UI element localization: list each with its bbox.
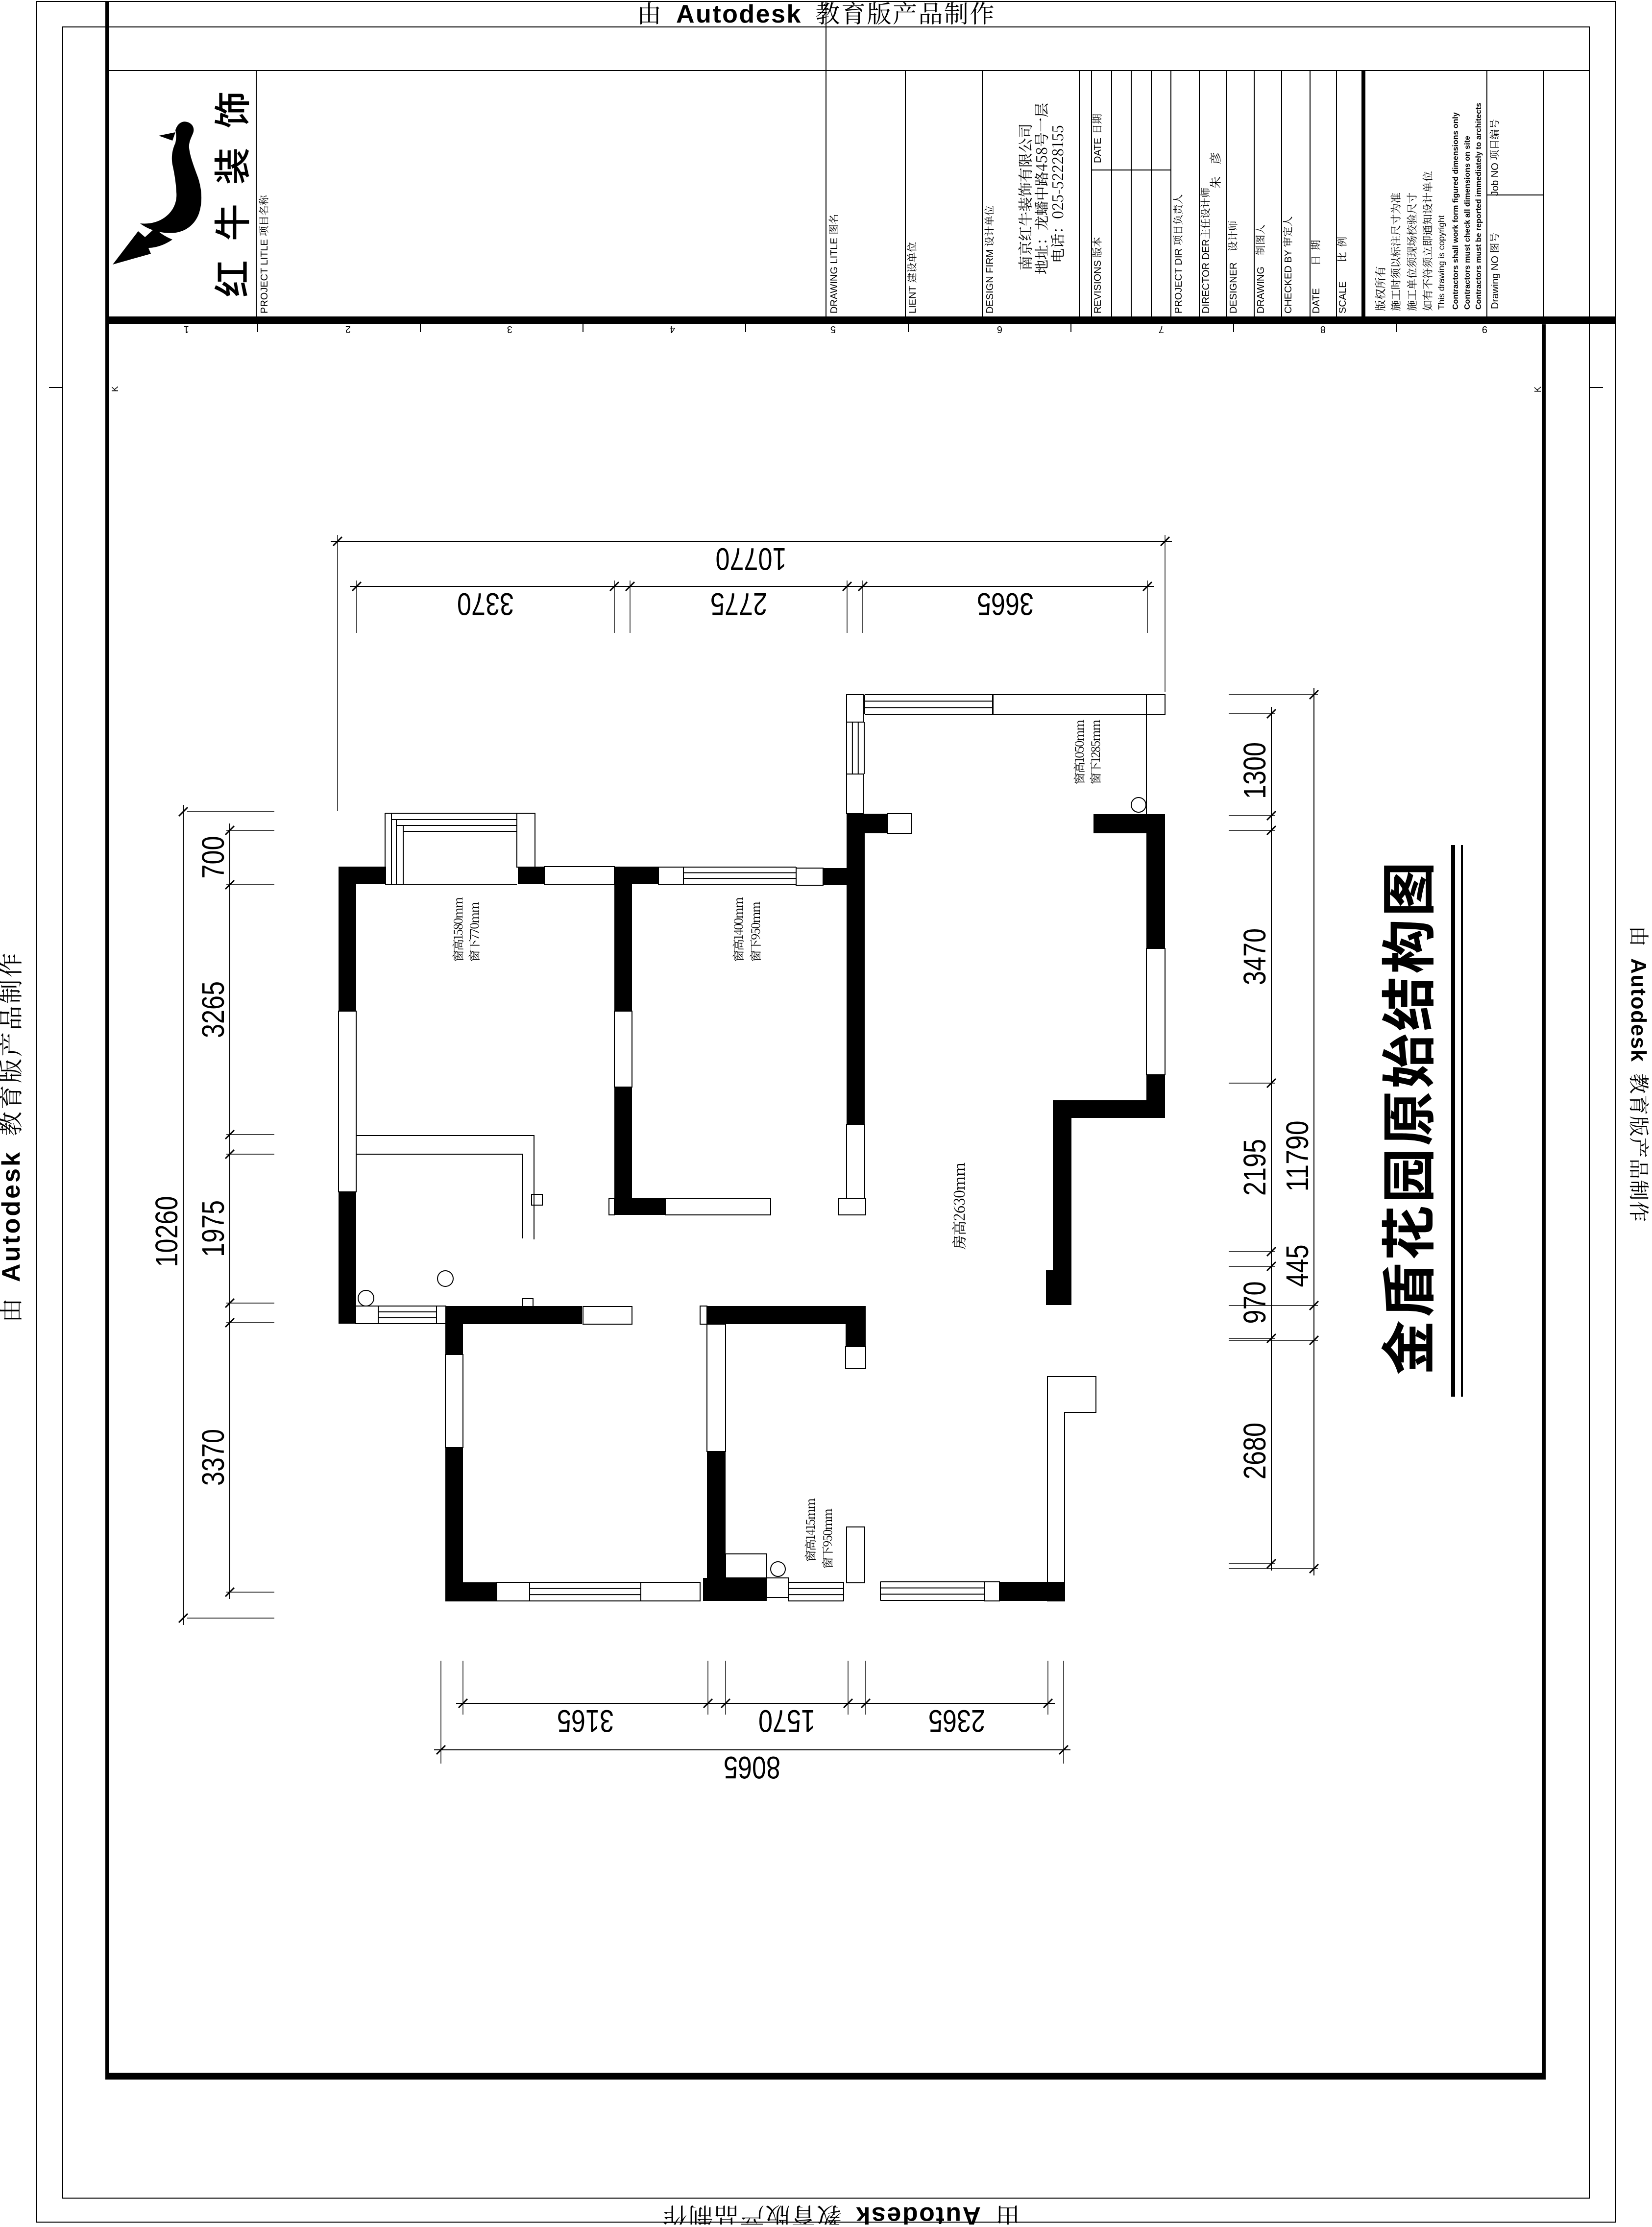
- svg-text:SCALE: SCALE: [1337, 263, 1348, 314]
- svg-text:2365: 2365: [928, 1703, 985, 1739]
- svg-text:5: 5: [830, 324, 836, 335]
- svg-text:Drawing NO: Drawing NO: [1490, 253, 1501, 309]
- svg-text:Contractors shall work form fi: Contractors shall work form figured dime…: [1452, 112, 1460, 310]
- svg-text:700: 700: [195, 836, 231, 879]
- svg-text:7: 7: [1159, 324, 1164, 335]
- svg-text:K: K: [1533, 387, 1543, 392]
- svg-text:2: 2: [345, 324, 351, 335]
- svg-text:2775: 2775: [710, 586, 767, 622]
- svg-text:8065: 8065: [724, 1750, 780, 1785]
- svg-text:Autodesk: Autodesk: [0, 1150, 25, 1282]
- svg-text:10260: 10260: [149, 1196, 184, 1267]
- svg-text:1975: 1975: [195, 1200, 231, 1257]
- svg-text:CHECKED BY: CHECKED BY: [1283, 247, 1294, 314]
- svg-text:3370: 3370: [195, 1429, 231, 1486]
- svg-text:LIENT: LIENT: [907, 283, 918, 314]
- svg-text:3265: 3265: [195, 981, 231, 1038]
- svg-text:DRAWING: DRAWING: [1256, 256, 1266, 314]
- svg-text:1300: 1300: [1237, 742, 1272, 799]
- svg-text:445: 445: [1280, 1245, 1315, 1287]
- svg-text:2195: 2195: [1237, 1139, 1272, 1196]
- svg-text:1: 1: [184, 324, 189, 335]
- svg-text:3470: 3470: [1237, 928, 1272, 985]
- svg-text:DATE: DATE: [1093, 135, 1103, 163]
- svg-text:3370: 3370: [457, 586, 514, 622]
- svg-text:Contractors must check all dim: Contractors must check all dimensions on…: [1463, 136, 1472, 310]
- svg-text:Autodesk: Autodesk: [855, 2202, 981, 2225]
- svg-text:DESIGN FIRM: DESIGN FIRM: [985, 246, 996, 314]
- svg-text:970: 970: [1237, 1282, 1272, 1324]
- svg-text:Job NO: Job NO: [1490, 160, 1501, 196]
- svg-text:3: 3: [507, 324, 512, 335]
- svg-text:3665: 3665: [977, 586, 1034, 622]
- svg-text:PROJECT DIR: PROJECT DIR: [1173, 245, 1184, 314]
- svg-text:DESIGNER: DESIGNER: [1228, 251, 1239, 314]
- svg-text:3165: 3165: [557, 1703, 614, 1739]
- svg-text:DRAWING LITLE: DRAWING LITLE: [829, 235, 840, 314]
- svg-text:PROJECT LITLE: PROJECT LITLE: [259, 237, 270, 314]
- svg-text:DATE: DATE: [1311, 266, 1322, 314]
- svg-text:2680: 2680: [1237, 1423, 1272, 1479]
- svg-text:6: 6: [997, 324, 1002, 335]
- svg-text:K: K: [110, 386, 120, 392]
- svg-text:Autodesk: Autodesk: [1627, 958, 1651, 1062]
- svg-text:11790: 11790: [1280, 1121, 1315, 1192]
- svg-text:This drawing is copyright: This drawing is copyright: [1436, 215, 1446, 310]
- svg-text:10770: 10770: [716, 541, 787, 577]
- svg-text:Contractors must be reported i: Contractors must be reported immediately…: [1475, 103, 1483, 310]
- svg-text:Autodesk: Autodesk: [676, 0, 802, 28]
- svg-text:DIRECTOR DER: DIRECTOR DER: [1201, 239, 1212, 314]
- svg-text:8: 8: [1320, 324, 1326, 335]
- svg-text:REVISIONS: REVISIONS: [1093, 258, 1103, 314]
- svg-text:4: 4: [670, 324, 675, 335]
- svg-text:1570: 1570: [758, 1703, 815, 1739]
- svg-text:9: 9: [1482, 324, 1487, 335]
